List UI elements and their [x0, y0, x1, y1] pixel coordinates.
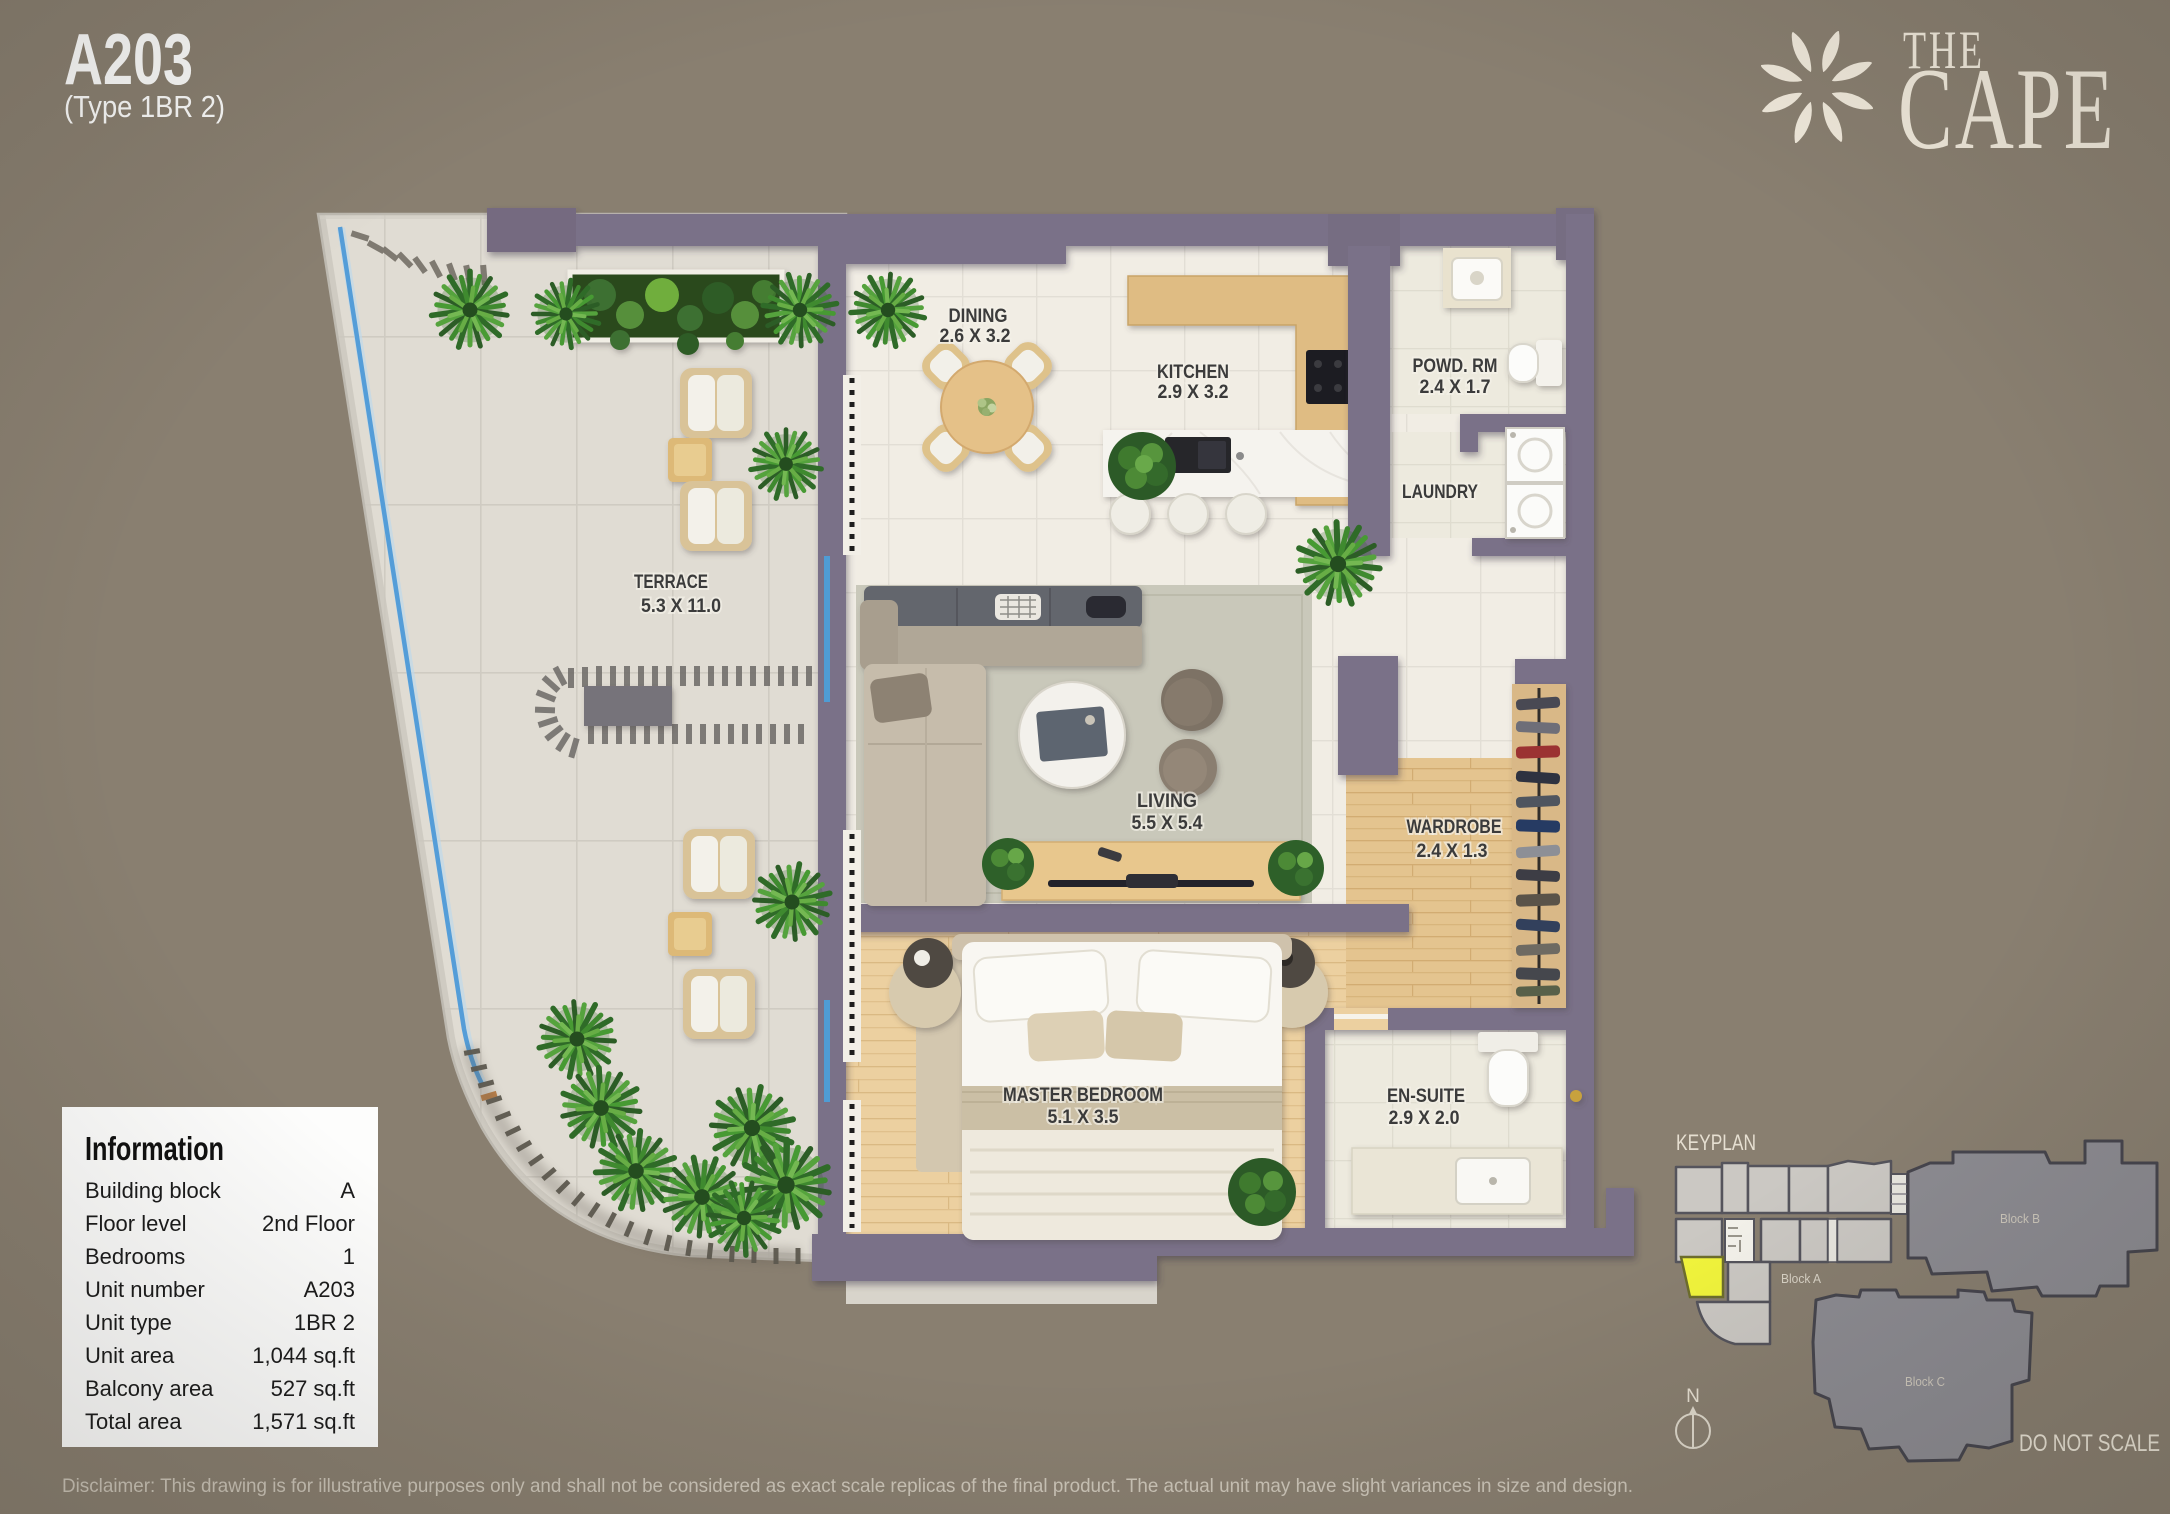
svg-text:A203: A203	[304, 1277, 355, 1302]
svg-text:LIVING: LIVING	[1137, 791, 1197, 812]
svg-text:DINING: DINING	[949, 306, 1008, 327]
svg-text:TERRACE: TERRACE	[634, 572, 708, 593]
svg-text:2nd Floor: 2nd Floor	[262, 1211, 355, 1236]
svg-text:Block C: Block C	[1905, 1374, 1945, 1389]
svg-text:5.5 X 5.4: 5.5 X 5.4	[1132, 813, 1203, 834]
svg-text:2.9 X 2.0: 2.9 X 2.0	[1389, 1108, 1460, 1129]
svg-text:(Type 1BR 2): (Type 1BR 2)	[64, 89, 225, 124]
svg-text:CAPE: CAPE	[1898, 44, 2116, 174]
svg-text:527 sq.ft: 527 sq.ft	[271, 1376, 355, 1401]
svg-text:Total area: Total area	[85, 1409, 182, 1434]
svg-text:Disclaimer: This drawing is fo: Disclaimer: This drawing is for illustra…	[62, 1475, 1633, 1497]
svg-text:Block A: Block A	[1781, 1271, 1821, 1286]
svg-text:WARDROBE: WARDROBE	[1407, 817, 1502, 838]
svg-text:DO NOT SCALE: DO NOT SCALE	[2019, 1430, 2160, 1457]
svg-text:Unit type: Unit type	[85, 1310, 172, 1335]
svg-text:2.6 X 3.2: 2.6 X 3.2	[940, 326, 1011, 347]
svg-text:2.9 X 3.2: 2.9 X 3.2	[1158, 382, 1229, 403]
svg-text:1,571 sq.ft: 1,571 sq.ft	[252, 1409, 355, 1434]
svg-text:Balcony area: Balcony area	[85, 1376, 214, 1401]
svg-text:LAUNDRY: LAUNDRY	[1402, 482, 1478, 503]
svg-text:KEYPLAN: KEYPLAN	[1676, 1130, 1756, 1155]
svg-text:5.3 X 11.0: 5.3 X 11.0	[641, 596, 721, 617]
svg-text:POWD. RM: POWD. RM	[1413, 356, 1498, 377]
svg-text:A203: A203	[64, 20, 193, 100]
svg-text:Bedrooms: Bedrooms	[85, 1244, 185, 1269]
svg-text:Block B: Block B	[2000, 1211, 2040, 1226]
svg-text:Unit area: Unit area	[85, 1343, 175, 1368]
svg-text:1: 1	[343, 1244, 355, 1269]
svg-text:2.4 X 1.3: 2.4 X 1.3	[1417, 841, 1488, 862]
svg-text:2.4 X 1.7: 2.4 X 1.7	[1420, 377, 1491, 398]
svg-text:1,044 sq.ft: 1,044 sq.ft	[252, 1343, 355, 1368]
svg-text:EN-SUITE: EN-SUITE	[1387, 1086, 1465, 1107]
svg-text:5.1 X 3.5: 5.1 X 3.5	[1048, 1107, 1119, 1128]
svg-text:Information: Information	[85, 1130, 224, 1167]
svg-text:MASTER BEDROOM: MASTER BEDROOM	[1003, 1085, 1163, 1106]
svg-text:Building block: Building block	[85, 1178, 222, 1203]
svg-text:N: N	[1686, 1386, 1700, 1407]
svg-text:Unit number: Unit number	[85, 1277, 205, 1302]
svg-text:KITCHEN: KITCHEN	[1157, 362, 1229, 383]
svg-text:A: A	[340, 1178, 355, 1203]
svg-text:1BR 2: 1BR 2	[294, 1310, 355, 1335]
svg-text:Floor level: Floor level	[85, 1211, 186, 1236]
